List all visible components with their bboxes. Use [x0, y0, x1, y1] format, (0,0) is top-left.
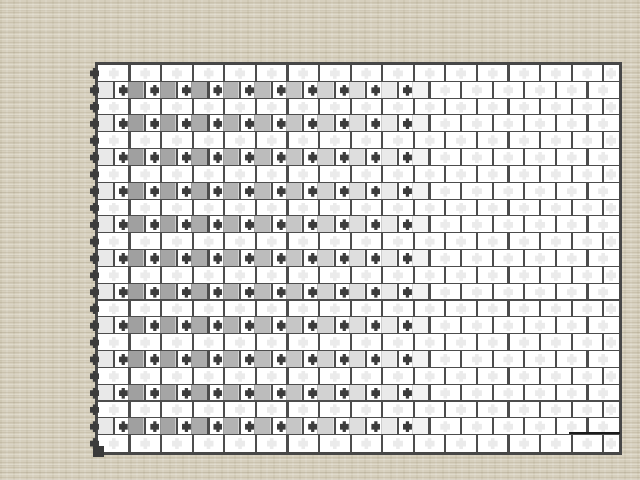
brick[interactable] [224, 267, 256, 284]
brick[interactable] [430, 284, 462, 301]
brick[interactable] [209, 250, 241, 267]
brick[interactable] [587, 250, 619, 267]
brick[interactable] [98, 368, 130, 385]
brick[interactable] [366, 149, 398, 166]
brick[interactable] [587, 317, 619, 334]
brick[interactable] [287, 301, 319, 318]
brick[interactable] [572, 132, 604, 149]
brick[interactable] [240, 82, 272, 99]
brick[interactable] [303, 284, 335, 301]
brick[interactable] [145, 385, 177, 402]
brick[interactable] [98, 418, 114, 435]
brick[interactable] [287, 334, 319, 351]
brick[interactable] [193, 435, 225, 452]
brick[interactable] [193, 267, 225, 284]
brick[interactable] [477, 402, 509, 419]
brick[interactable] [177, 82, 209, 99]
brick[interactable] [603, 99, 619, 116]
brick[interactable] [161, 233, 193, 250]
brick[interactable] [114, 115, 146, 132]
brick[interactable] [572, 233, 604, 250]
brick[interactable] [508, 65, 540, 82]
brick[interactable] [430, 183, 462, 200]
brick[interactable] [351, 99, 383, 116]
brick[interactable] [398, 418, 430, 435]
brick[interactable] [335, 385, 367, 402]
brick[interactable] [382, 65, 414, 82]
brick[interactable] [556, 82, 588, 99]
brick[interactable] [209, 82, 241, 99]
brick[interactable] [461, 82, 493, 99]
brick[interactable] [130, 402, 162, 419]
brick[interactable] [98, 216, 114, 233]
brick[interactable] [493, 385, 525, 402]
brick[interactable] [145, 216, 177, 233]
brick[interactable] [335, 183, 367, 200]
brick[interactable] [572, 402, 604, 419]
brick[interactable] [382, 368, 414, 385]
brick[interactable] [130, 233, 162, 250]
brick[interactable] [351, 368, 383, 385]
brick[interactable] [445, 267, 477, 284]
brick[interactable] [240, 317, 272, 334]
brick[interactable] [335, 284, 367, 301]
brick[interactable] [398, 82, 430, 99]
brick[interactable] [382, 435, 414, 452]
brick[interactable] [240, 418, 272, 435]
brick[interactable] [98, 82, 114, 99]
brick[interactable] [477, 200, 509, 217]
brick[interactable] [540, 166, 572, 183]
brick[interactable] [303, 115, 335, 132]
brick[interactable] [351, 132, 383, 149]
brick[interactable] [177, 216, 209, 233]
brick[interactable] [414, 65, 446, 82]
brick[interactable] [209, 115, 241, 132]
brick[interactable] [193, 402, 225, 419]
brick[interactable] [398, 216, 430, 233]
brick[interactable] [209, 385, 241, 402]
brick[interactable] [272, 82, 304, 99]
brick[interactable] [556, 250, 588, 267]
brick[interactable] [430, 115, 462, 132]
brick[interactable] [145, 284, 177, 301]
brick[interactable] [240, 284, 272, 301]
brick[interactable] [524, 183, 556, 200]
brick[interactable] [114, 82, 146, 99]
brick[interactable] [287, 402, 319, 419]
brick[interactable] [256, 99, 288, 116]
brick[interactable] [603, 267, 619, 284]
brick[interactable] [493, 82, 525, 99]
brick[interactable] [572, 166, 604, 183]
brick[interactable] [224, 402, 256, 419]
brick[interactable] [272, 216, 304, 233]
brick[interactable] [461, 149, 493, 166]
brick[interactable] [177, 250, 209, 267]
brick[interactable] [319, 301, 351, 318]
brick[interactable] [603, 435, 619, 452]
brick[interactable] [177, 317, 209, 334]
brick[interactable] [366, 82, 398, 99]
brick[interactable] [540, 267, 572, 284]
brick[interactable] [445, 166, 477, 183]
brick[interactable] [366, 216, 398, 233]
brick[interactable] [319, 267, 351, 284]
brick[interactable] [98, 99, 130, 116]
brick[interactable] [493, 149, 525, 166]
brick[interactable] [556, 284, 588, 301]
brick[interactable] [382, 166, 414, 183]
brick[interactable] [272, 183, 304, 200]
brick[interactable] [161, 99, 193, 116]
brick[interactable] [193, 233, 225, 250]
brick[interactable] [603, 65, 619, 82]
brick[interactable] [508, 301, 540, 318]
brick[interactable] [98, 317, 114, 334]
brick[interactable] [272, 385, 304, 402]
brick[interactable] [540, 301, 572, 318]
brick[interactable] [98, 132, 130, 149]
brick[interactable] [98, 301, 130, 318]
brick[interactable] [98, 385, 114, 402]
brick[interactable] [508, 200, 540, 217]
brick[interactable] [98, 267, 130, 284]
brick[interactable] [445, 99, 477, 116]
brick[interactable] [572, 301, 604, 318]
brick[interactable] [272, 317, 304, 334]
brick[interactable] [224, 99, 256, 116]
brick[interactable] [445, 200, 477, 217]
brick[interactable] [145, 418, 177, 435]
brick[interactable] [414, 368, 446, 385]
brick[interactable] [256, 402, 288, 419]
puzzle-board[interactable] [95, 62, 622, 455]
brick[interactable] [524, 418, 556, 435]
brick[interactable] [366, 250, 398, 267]
brick[interactable] [224, 301, 256, 318]
brick[interactable] [177, 351, 209, 368]
brick[interactable] [351, 233, 383, 250]
brick[interactable] [319, 233, 351, 250]
brick[interactable] [461, 250, 493, 267]
brick[interactable] [161, 402, 193, 419]
brick[interactable] [98, 149, 114, 166]
brick[interactable] [145, 149, 177, 166]
brick[interactable] [114, 385, 146, 402]
brick[interactable] [161, 368, 193, 385]
brick[interactable] [461, 418, 493, 435]
brick[interactable] [98, 351, 114, 368]
brick[interactable] [414, 233, 446, 250]
corner-handle[interactable] [93, 446, 104, 457]
brick[interactable] [303, 418, 335, 435]
brick[interactable] [224, 334, 256, 351]
brick[interactable] [398, 250, 430, 267]
brick[interactable] [256, 166, 288, 183]
brick[interactable] [398, 385, 430, 402]
brick[interactable] [524, 82, 556, 99]
brick[interactable] [445, 233, 477, 250]
brick[interactable] [524, 216, 556, 233]
brick[interactable] [303, 183, 335, 200]
brick[interactable] [193, 301, 225, 318]
brick[interactable] [603, 200, 619, 217]
brick[interactable] [177, 183, 209, 200]
brick[interactable] [224, 166, 256, 183]
brick[interactable] [477, 301, 509, 318]
brick[interactable] [240, 149, 272, 166]
brick[interactable] [193, 65, 225, 82]
brick[interactable] [524, 385, 556, 402]
brick[interactable] [508, 233, 540, 250]
brick[interactable] [287, 267, 319, 284]
brick[interactable] [493, 418, 525, 435]
brick[interactable] [540, 334, 572, 351]
brick[interactable] [319, 166, 351, 183]
brick[interactable] [224, 368, 256, 385]
brick[interactable] [556, 183, 588, 200]
brick[interactable] [587, 183, 619, 200]
brick[interactable] [256, 200, 288, 217]
brick[interactable] [98, 334, 130, 351]
brick[interactable] [508, 166, 540, 183]
brick[interactable] [540, 233, 572, 250]
brick[interactable] [114, 250, 146, 267]
brick[interactable] [398, 183, 430, 200]
brick[interactable] [477, 368, 509, 385]
brick[interactable] [319, 200, 351, 217]
brick[interactable] [145, 351, 177, 368]
brick[interactable] [319, 368, 351, 385]
brick[interactable] [193, 368, 225, 385]
brick[interactable] [540, 435, 572, 452]
brick[interactable] [414, 132, 446, 149]
brick[interactable] [477, 435, 509, 452]
brick[interactable] [572, 368, 604, 385]
brick[interactable] [398, 115, 430, 132]
brick[interactable] [524, 351, 556, 368]
brick[interactable] [256, 233, 288, 250]
brick[interactable] [240, 385, 272, 402]
brick[interactable] [145, 183, 177, 200]
brick[interactable] [414, 200, 446, 217]
brick[interactable] [430, 149, 462, 166]
brick[interactable] [351, 200, 383, 217]
brick[interactable] [177, 115, 209, 132]
brick[interactable] [98, 65, 130, 82]
brick[interactable] [477, 99, 509, 116]
brick[interactable] [382, 200, 414, 217]
brick[interactable] [508, 334, 540, 351]
brick[interactable] [287, 132, 319, 149]
brick[interactable] [461, 115, 493, 132]
brick[interactable] [193, 200, 225, 217]
brick[interactable] [351, 301, 383, 318]
brick[interactable] [445, 402, 477, 419]
brick[interactable] [130, 267, 162, 284]
brick[interactable] [303, 385, 335, 402]
brick[interactable] [161, 65, 193, 82]
brick[interactable] [98, 115, 114, 132]
brick[interactable] [130, 334, 162, 351]
brick[interactable] [540, 368, 572, 385]
brick[interactable] [477, 267, 509, 284]
brick[interactable] [366, 317, 398, 334]
brick[interactable] [193, 166, 225, 183]
brick[interactable] [351, 402, 383, 419]
brick[interactable] [240, 183, 272, 200]
brick[interactable] [240, 115, 272, 132]
brick[interactable] [351, 65, 383, 82]
brick[interactable] [287, 233, 319, 250]
brick[interactable] [319, 402, 351, 419]
brick[interactable] [540, 200, 572, 217]
brick[interactable] [224, 200, 256, 217]
brick[interactable] [209, 216, 241, 233]
brick[interactable] [414, 402, 446, 419]
brick[interactable] [272, 351, 304, 368]
brick[interactable] [319, 99, 351, 116]
brick[interactable] [272, 284, 304, 301]
brick[interactable] [351, 166, 383, 183]
brick[interactable] [287, 200, 319, 217]
brick[interactable] [540, 99, 572, 116]
brick[interactable] [524, 149, 556, 166]
brick[interactable] [145, 317, 177, 334]
brick[interactable] [572, 65, 604, 82]
brick[interactable] [603, 334, 619, 351]
brick[interactable] [161, 301, 193, 318]
brick[interactable] [114, 317, 146, 334]
brick[interactable] [540, 132, 572, 149]
brick[interactable] [351, 267, 383, 284]
brick[interactable] [335, 82, 367, 99]
brick[interactable] [430, 82, 462, 99]
brick[interactable] [603, 301, 619, 318]
brick[interactable] [161, 132, 193, 149]
brick[interactable] [414, 435, 446, 452]
brick[interactable] [209, 351, 241, 368]
brick[interactable] [335, 351, 367, 368]
brick[interactable] [382, 267, 414, 284]
brick[interactable] [98, 166, 130, 183]
brick[interactable] [508, 368, 540, 385]
brick[interactable] [414, 267, 446, 284]
brick[interactable] [130, 99, 162, 116]
brick[interactable] [508, 267, 540, 284]
brick[interactable] [287, 435, 319, 452]
brick[interactable] [130, 200, 162, 217]
brick[interactable] [587, 216, 619, 233]
brick[interactable] [603, 166, 619, 183]
brick[interactable] [603, 402, 619, 419]
brick[interactable] [335, 216, 367, 233]
brick[interactable] [177, 284, 209, 301]
brick[interactable] [335, 115, 367, 132]
brick[interactable] [461, 317, 493, 334]
brick[interactable] [161, 166, 193, 183]
brick[interactable] [272, 418, 304, 435]
brick[interactable] [209, 183, 241, 200]
brick[interactable] [335, 149, 367, 166]
brick[interactable] [540, 402, 572, 419]
brick[interactable] [398, 284, 430, 301]
brick[interactable] [445, 301, 477, 318]
brick[interactable] [114, 183, 146, 200]
brick[interactable] [98, 200, 130, 217]
brick[interactable] [493, 115, 525, 132]
brick[interactable] [556, 115, 588, 132]
brick[interactable] [114, 351, 146, 368]
brick[interactable] [98, 402, 130, 419]
brick[interactable] [414, 301, 446, 318]
brick[interactable] [272, 115, 304, 132]
brick[interactable] [272, 250, 304, 267]
brick[interactable] [130, 368, 162, 385]
brick[interactable] [493, 317, 525, 334]
brick[interactable] [130, 166, 162, 183]
brick[interactable] [524, 115, 556, 132]
brick[interactable] [445, 334, 477, 351]
brick[interactable] [524, 250, 556, 267]
brick[interactable] [572, 267, 604, 284]
brick[interactable] [224, 65, 256, 82]
brick[interactable] [287, 65, 319, 82]
brick[interactable] [382, 334, 414, 351]
brick[interactable] [366, 418, 398, 435]
brick[interactable] [445, 435, 477, 452]
brick[interactable] [414, 99, 446, 116]
brick[interactable] [508, 99, 540, 116]
brick[interactable] [587, 385, 619, 402]
brick[interactable] [130, 301, 162, 318]
brick[interactable] [256, 301, 288, 318]
brick[interactable] [114, 284, 146, 301]
brick[interactable] [587, 82, 619, 99]
brick[interactable] [224, 132, 256, 149]
brick[interactable] [256, 267, 288, 284]
brick[interactable] [366, 183, 398, 200]
brick[interactable] [303, 82, 335, 99]
brick[interactable] [351, 435, 383, 452]
brick[interactable] [366, 351, 398, 368]
brick[interactable] [430, 351, 462, 368]
brick[interactable] [303, 351, 335, 368]
brick[interactable] [256, 435, 288, 452]
brick[interactable] [256, 65, 288, 82]
brick[interactable] [335, 250, 367, 267]
brick[interactable] [319, 132, 351, 149]
brick[interactable] [351, 334, 383, 351]
brick[interactable] [193, 334, 225, 351]
brick[interactable] [603, 132, 619, 149]
brick[interactable] [398, 351, 430, 368]
brick[interactable] [366, 115, 398, 132]
brick[interactable] [572, 200, 604, 217]
brick[interactable] [145, 250, 177, 267]
brick[interactable] [445, 132, 477, 149]
brick[interactable] [98, 250, 114, 267]
brick[interactable] [587, 115, 619, 132]
brick[interactable] [209, 284, 241, 301]
brick[interactable] [98, 233, 130, 250]
brick[interactable] [130, 132, 162, 149]
brick[interactable] [193, 99, 225, 116]
brick[interactable] [382, 233, 414, 250]
brick[interactable] [114, 216, 146, 233]
brick[interactable] [414, 334, 446, 351]
